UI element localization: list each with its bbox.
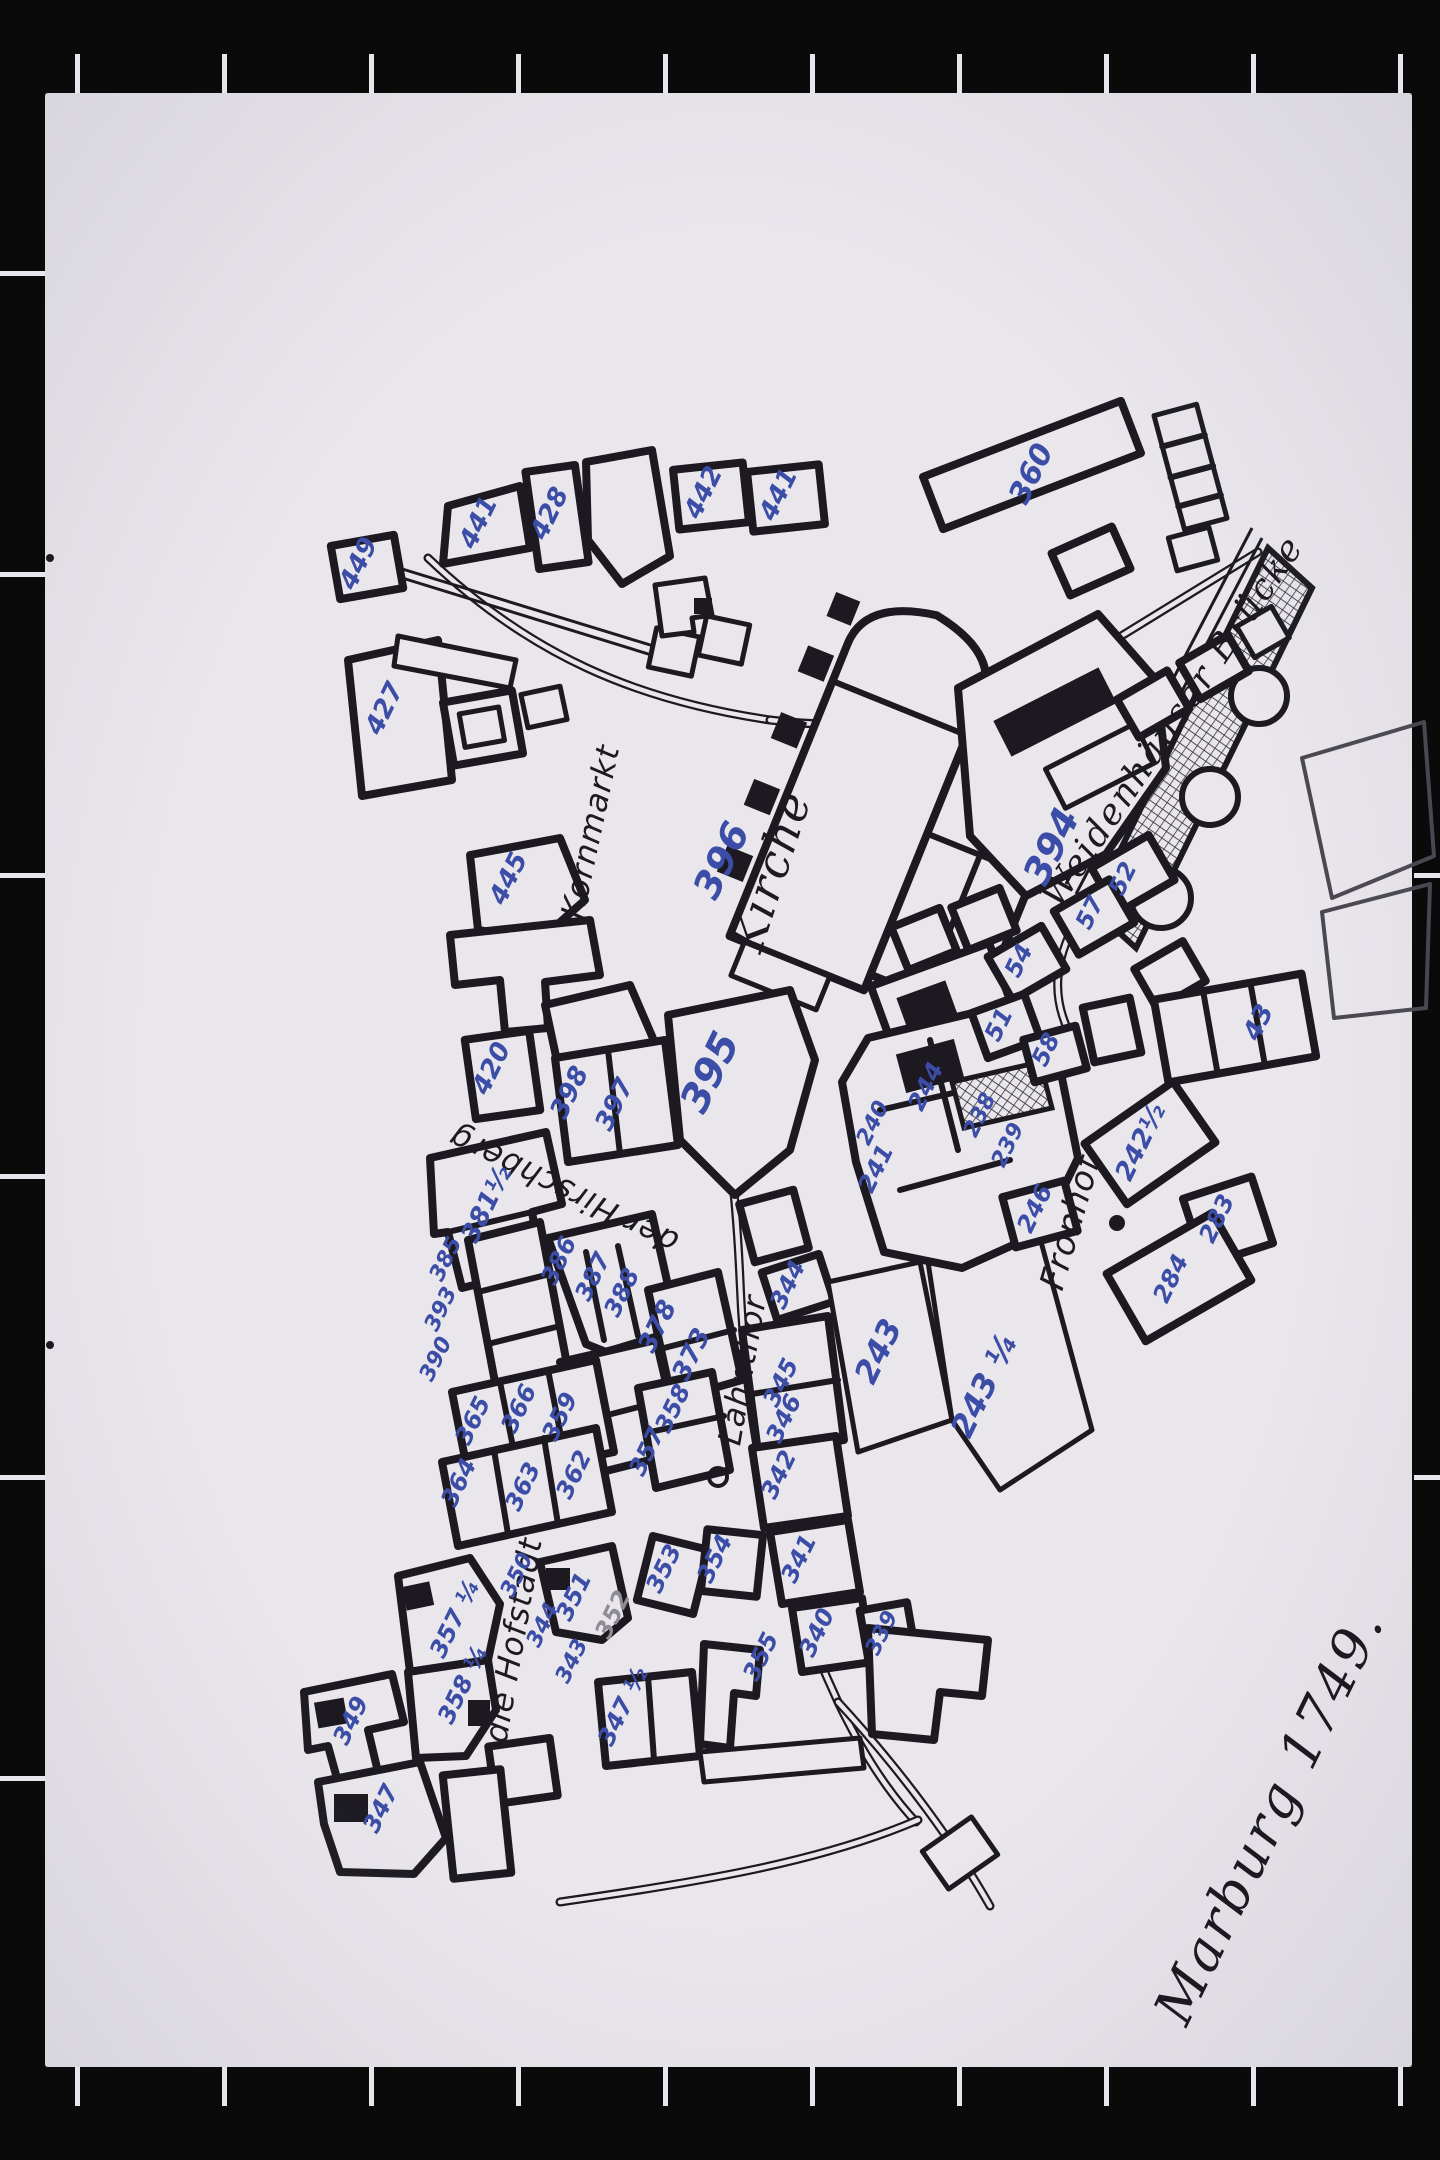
ruler-ticks-shape — [0, 1776, 46, 1781]
ruler-ticks-shape — [516, 54, 521, 94]
ruler-ticks-shape — [1251, 2066, 1256, 2106]
ruler-ticks-shape — [1251, 54, 1256, 94]
ruler-ticks-shape — [1398, 54, 1403, 94]
ruler-ticks-shape — [75, 2066, 80, 2106]
ruler-ticks-shape — [1414, 1475, 1440, 1480]
ruler-ticks-shape — [369, 54, 374, 94]
ruler-ticks-shape — [369, 2066, 374, 2106]
edge-dot — [46, 1341, 54, 1349]
ruler-ticks-shape — [1398, 2066, 1403, 2106]
ruler-ticks-shape — [1104, 2066, 1109, 2106]
ruler-ticks-shape — [1414, 873, 1440, 878]
ruler-ticks-shape — [663, 2066, 668, 2106]
ruler-ticks-shape — [0, 572, 46, 577]
ruler-ticks-shape — [810, 2066, 815, 2106]
scanned-map-photo: Marburg 1749. — [0, 0, 1440, 2160]
ruler-ticks-shape — [0, 873, 46, 878]
ruler-ticks-shape — [0, 1174, 46, 1179]
ruler-ticks-shape — [516, 2066, 521, 2106]
ruler-ticks-shape — [222, 2066, 227, 2106]
ruler-ticks-shape — [222, 54, 227, 94]
ruler-ticks-shape — [810, 54, 815, 94]
ruler-ticks-shape — [957, 2066, 962, 2106]
ruler-ticks-shape — [1104, 54, 1109, 94]
ruler-ticks-shape — [75, 54, 80, 94]
ruler-ticks-shape — [663, 54, 668, 94]
edge-dot — [46, 554, 54, 562]
ruler-ticks-shape — [0, 1475, 46, 1480]
ruler-ticks-shape — [957, 54, 962, 94]
ruler-ticks-shape — [0, 271, 46, 276]
